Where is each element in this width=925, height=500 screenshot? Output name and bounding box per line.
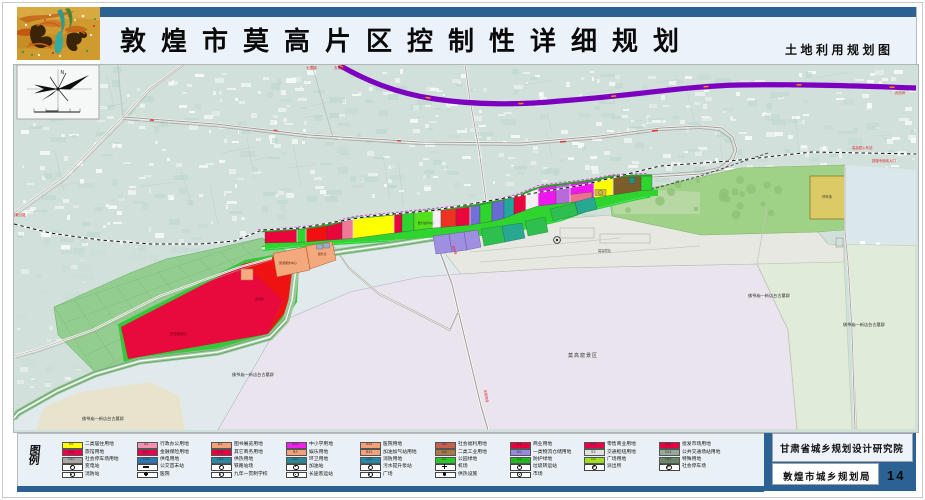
svg-text:N: N	[61, 70, 65, 76]
svg-text:佛爷庙—新店台古墓群: 佛爷庙—新店台古墓群	[82, 415, 125, 422]
svg-text:安敦公路: 安敦公路	[14, 212, 26, 217]
svg-text:旅游度假区: 旅游度假区	[170, 331, 188, 336]
svg-text:佛爷庙—新店台古墓群: 佛爷庙—新店台古墓群	[843, 321, 886, 328]
svg-text:旅游服务中心: 旅游服务中心	[279, 260, 297, 265]
svg-text:佛爷庙—新店台古墓群: 佛爷庙—新店台古墓群	[232, 371, 275, 378]
svg-text:度假区: 度假区	[255, 296, 264, 301]
svg-text:莫高窟站: 莫高窟站	[598, 248, 612, 253]
svg-text:莫高窟景区: 莫高窟景区	[568, 352, 598, 359]
svg-text:服务点: 服务点	[318, 252, 327, 256]
svg-text:停车场: 停车场	[822, 194, 832, 199]
svg-text:佛爷庙—新店台古墓群: 佛爷庙—新店台古墓群	[748, 292, 791, 299]
svg-text:去瓜州: 去瓜州	[334, 65, 345, 70]
svg-text:七里镇: 七里镇	[306, 65, 317, 70]
svg-text:铁路专用线入口: 铁路专用线入口	[872, 158, 896, 163]
svg-text:数字展示中心: 数字展示中心	[418, 221, 434, 225]
svg-text:去瓜州: 去瓜州	[895, 90, 906, 95]
svg-text:莫高窟火车站: 莫高窟火车站	[852, 145, 873, 150]
